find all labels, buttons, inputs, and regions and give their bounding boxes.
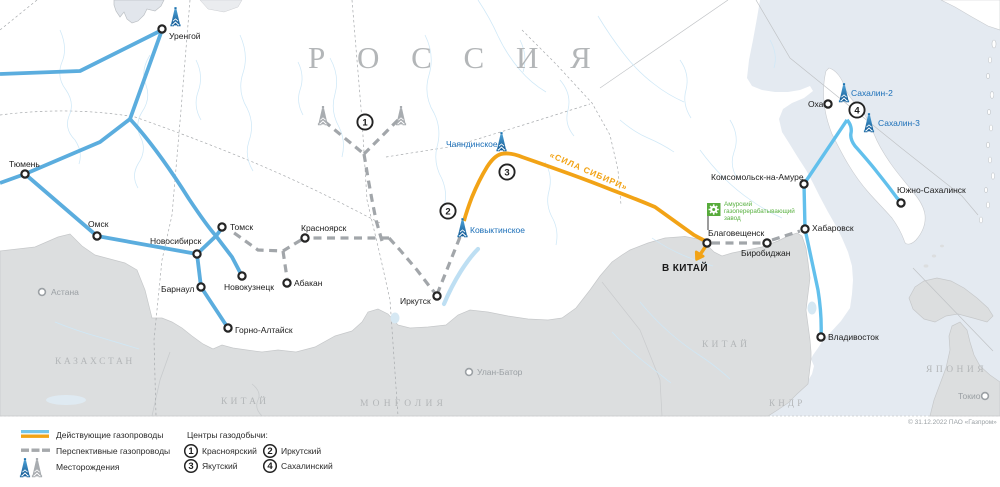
svg-text:Иркутский: Иркутский [281,446,321,456]
svg-text:КНДР: КНДР [769,398,805,408]
svg-text:Комсомольск-на-Амуре: Комсомольск-на-Амуре [711,172,804,182]
svg-text:3: 3 [188,461,193,472]
svg-text:2: 2 [445,207,450,218]
svg-text:Новокузнецк: Новокузнецк [224,282,274,292]
svg-text:Хабаровск: Хабаровск [812,223,854,233]
svg-text:Оха: Оха [808,99,824,109]
svg-text:Сахалинский: Сахалинский [281,461,333,471]
svg-text:Красноярский: Красноярский [202,446,257,456]
svg-text:Иркутск: Иркутск [400,296,431,306]
svg-text:КИТАЙ: КИТАЙ [702,338,750,350]
svg-text:Ковыктинское: Ковыктинское [470,225,525,235]
svg-text:Омск: Омск [88,219,109,229]
svg-text:Сахалин-2: Сахалин-2 [851,88,893,98]
svg-text:Месторождения: Месторождения [56,462,120,472]
svg-text:1: 1 [188,446,194,457]
svg-text:КИТАЙ: КИТАЙ [221,395,269,407]
svg-text:Токио: Токио [958,391,981,401]
svg-text:Томск: Томск [230,222,253,232]
svg-text:Сахалин-3: Сахалин-3 [878,118,920,128]
svg-text:4: 4 [267,461,273,472]
svg-text:Якутский: Якутский [202,461,238,471]
svg-text:Горно-Алтайск: Горно-Алтайск [235,325,293,335]
svg-text:Действующие газопроводы: Действующие газопроводы [56,430,163,440]
svg-text:Центры газодобычи:: Центры газодобычи: [187,430,268,440]
svg-text:3: 3 [504,168,509,179]
svg-text:Уренгой: Уренгой [169,31,201,41]
svg-text:Астана: Астана [51,287,79,297]
svg-text:2: 2 [267,446,272,457]
svg-text:В КИТАЙ: В КИТАЙ [662,261,708,274]
svg-text:© 31.12.2022 ПАО «Газпром»: © 31.12.2022 ПАО «Газпром» [908,418,997,426]
svg-text:ЯПОНИЯ: ЯПОНИЯ [926,365,987,375]
svg-text:завод: завод [724,215,741,222]
svg-text:Красноярск: Красноярск [301,223,347,233]
svg-text:газоперерабатывающий: газоперерабатывающий [724,207,795,215]
svg-text:Владивосток: Владивосток [828,332,879,342]
svg-text:Барнаул: Барнаул [161,284,194,294]
svg-text:Перспективные газопроводы: Перспективные газопроводы [56,446,170,456]
svg-text:Новосибирск: Новосибирск [150,236,202,246]
svg-text:Южно-Сахалинск: Южно-Сахалинск [897,185,966,195]
svg-text:4: 4 [854,106,860,117]
svg-text:Улан-Батор: Улан-Батор [477,367,523,377]
svg-text:Биробиджан: Биробиджан [741,248,791,258]
svg-text:КАЗАХСТАН: КАЗАХСТАН [55,357,135,367]
svg-text:1: 1 [362,118,368,129]
svg-text:Амурский: Амурский [724,200,753,208]
svg-text:Чаяндинское: Чаяндинское [446,139,498,149]
svg-text:Тюмень: Тюмень [9,159,40,169]
svg-text:МОНГОЛИЯ: МОНГОЛИЯ [360,399,447,409]
svg-text:Абакан: Абакан [294,278,323,288]
svg-text:Благовещенск: Благовещенск [708,228,765,238]
svg-text:Р О С С И Я: Р О С С И Я [308,40,603,75]
